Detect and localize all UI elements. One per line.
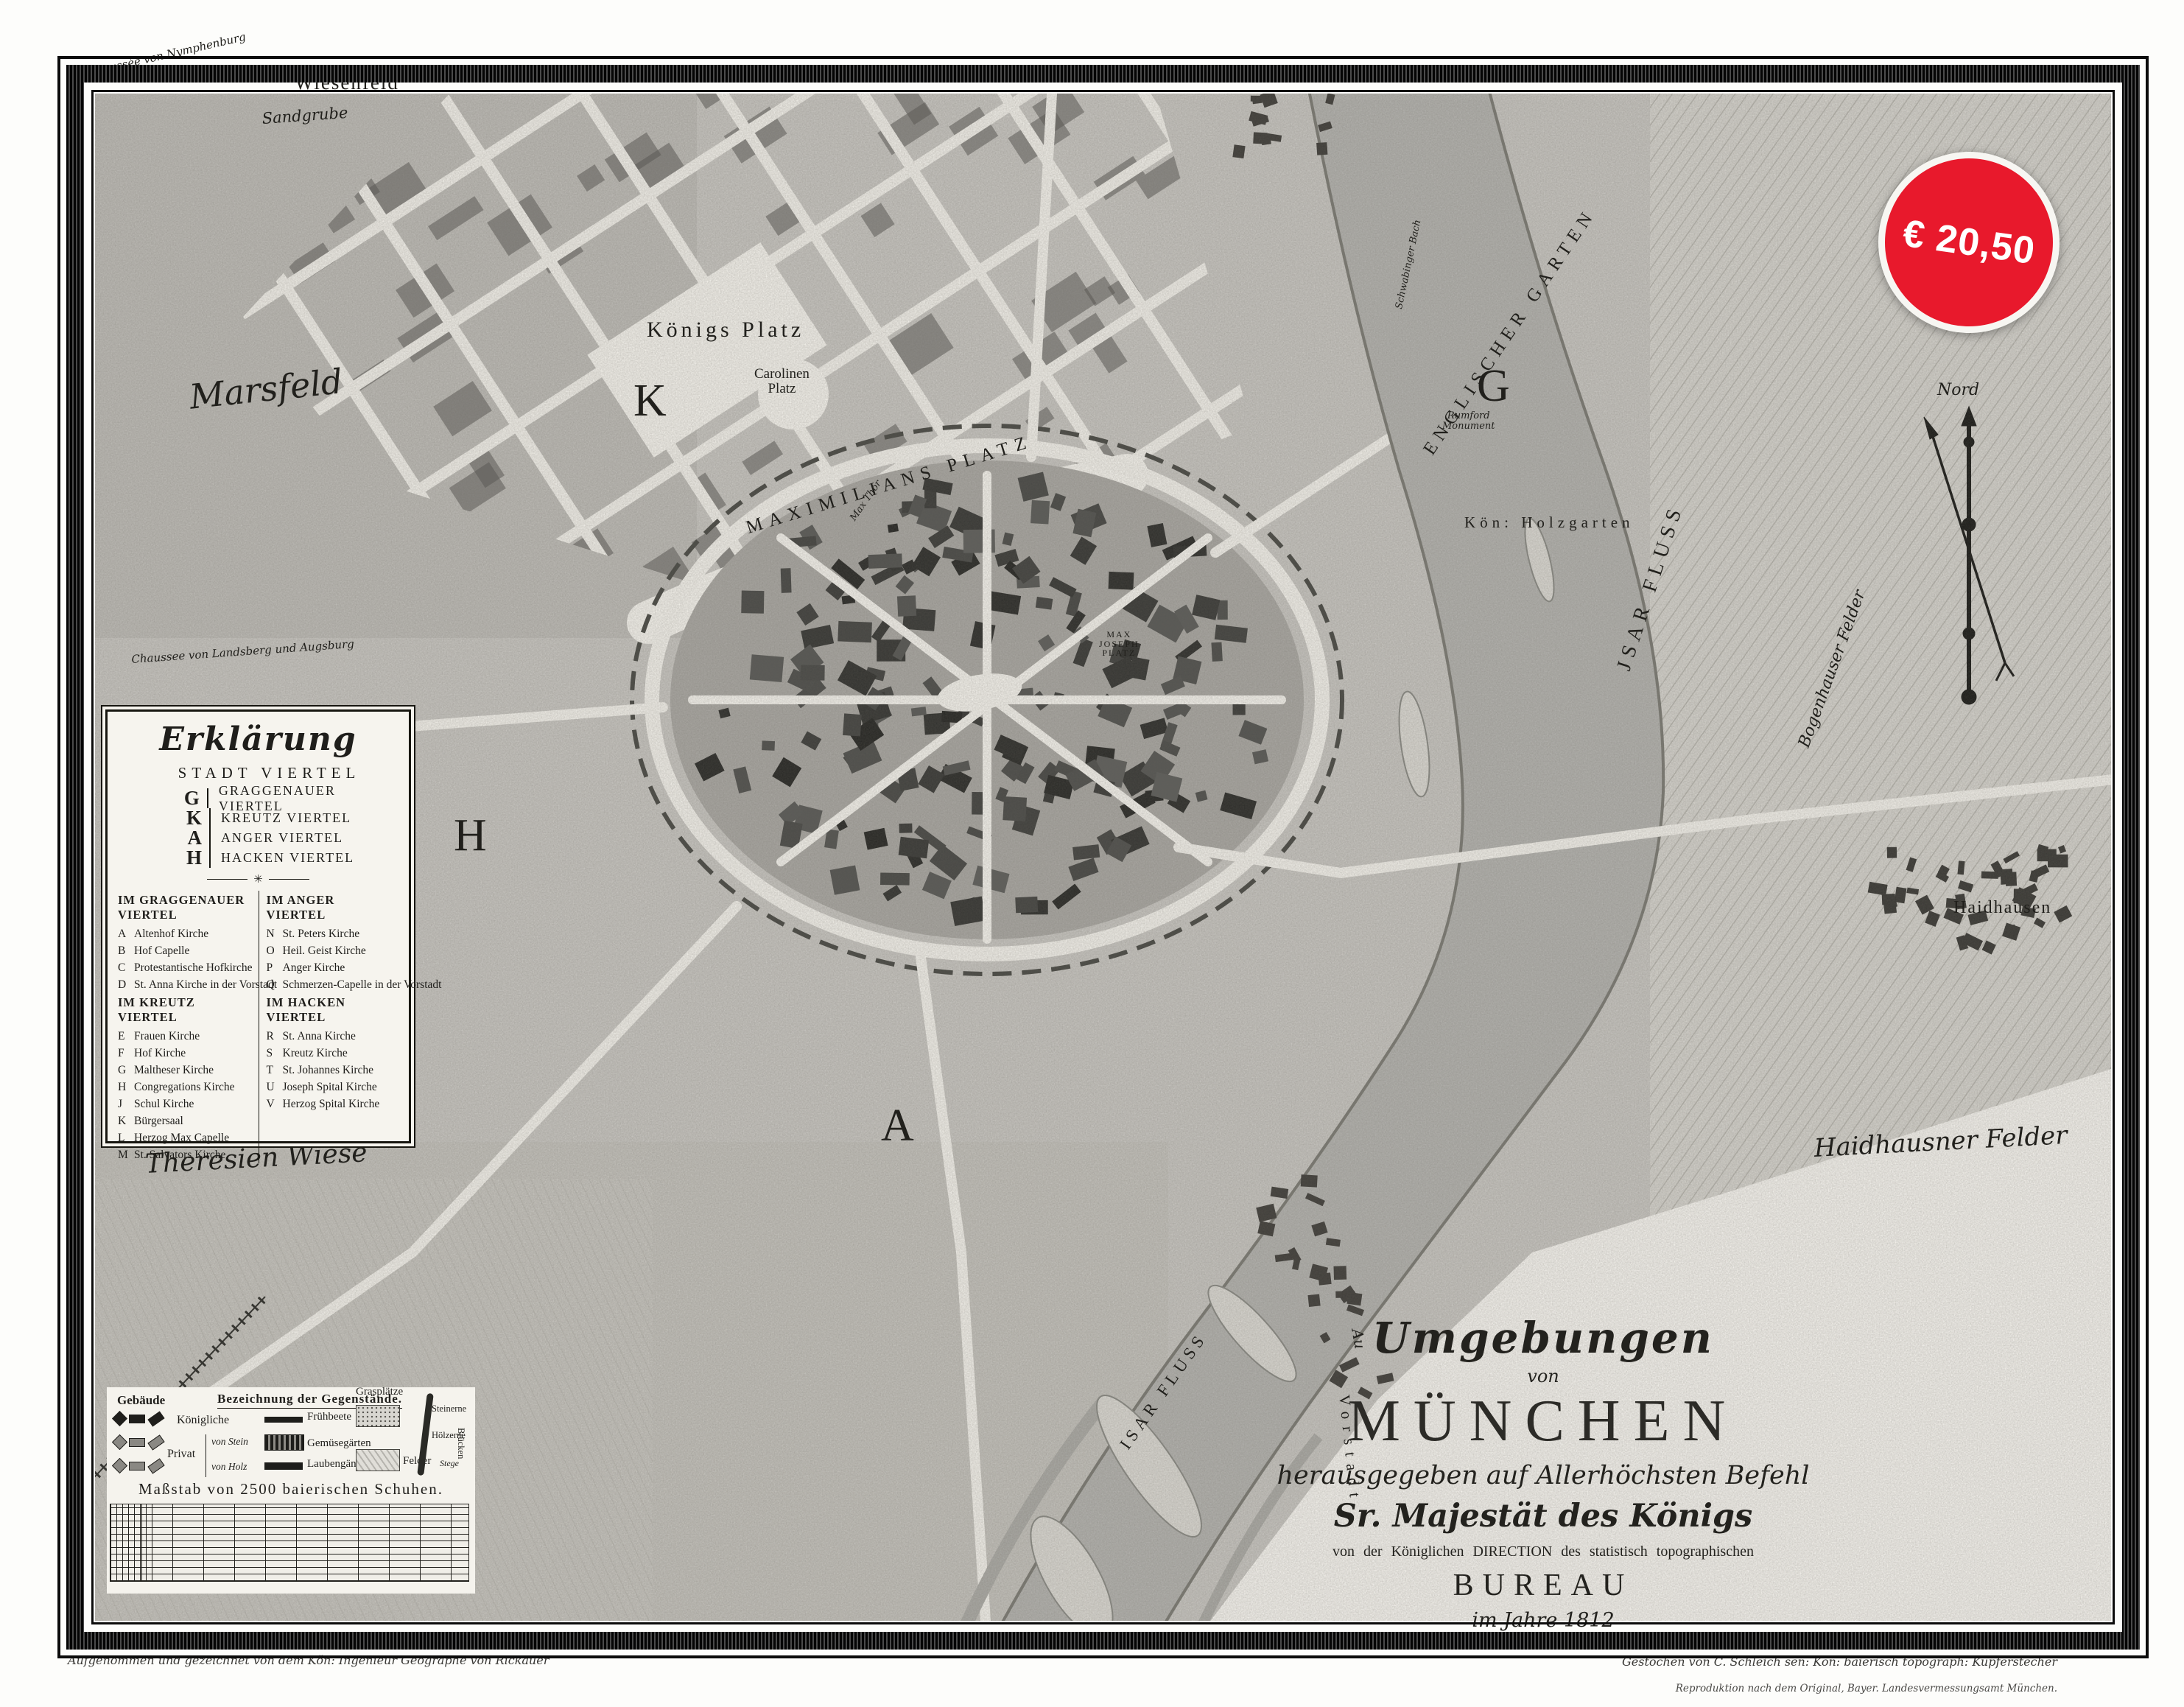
church-key: F xyxy=(118,1045,134,1062)
church-label: St. Anna Kirche xyxy=(283,1028,356,1045)
steinerne-label: Steinerne xyxy=(432,1403,466,1415)
church-column-right: IM ANGER VIERTELNSt. Peters KircheOHeil.… xyxy=(259,891,401,1163)
grasplaetze-symbol xyxy=(356,1405,400,1427)
gebaeude-label: Gebäude xyxy=(117,1393,165,1408)
church-key: R xyxy=(267,1028,283,1045)
map-label: Chaussée von Nymphenburg xyxy=(87,32,247,80)
church-label: Schul Kirche xyxy=(134,1096,194,1112)
quarter-label: GRAGGENAUER VIERTEL xyxy=(207,788,400,808)
church-entry: AAltenhof Kirche xyxy=(118,925,254,942)
church-entry: FHof Kirche xyxy=(118,1045,254,1062)
cartouche-line8: im Jahre 1812 xyxy=(1237,1609,1849,1632)
church-entry: CProtestantische Hofkirche xyxy=(118,959,254,976)
church-entry: SKreutz Kirche xyxy=(267,1045,396,1062)
church-entry: TSt. Johannes Kirche xyxy=(267,1062,396,1079)
quarter-row: AANGER VIERTEL xyxy=(116,828,400,848)
church-entry: UJoseph Spital Kirche xyxy=(267,1079,396,1096)
church-entry: QSchmerzen-Capelle in der Vorstadt xyxy=(267,976,396,993)
church-entry: OHeil. Geist Kirche xyxy=(267,942,396,959)
church-key: A xyxy=(118,925,134,942)
church-key: L xyxy=(118,1129,134,1146)
felder-label: Felder xyxy=(403,1455,431,1468)
credit-reproduction: Reproduktion nach dem Original, Bayer. L… xyxy=(1676,1683,2057,1694)
map-page: { "price_sticker": { "text": "€ 20,50", … xyxy=(0,0,2184,1707)
church-entry: JSchul Kirche xyxy=(118,1096,254,1112)
church-key: Q xyxy=(267,976,283,993)
quarter-row: HHACKEN VIERTEL xyxy=(116,848,400,868)
gemuesegaerten-label: Gemüsegärten xyxy=(307,1437,371,1450)
von-stein-label: von Stein xyxy=(211,1436,248,1448)
map-label: Wiesenfeld xyxy=(295,72,399,93)
quarter-row: GGRAGGENAUER VIERTEL xyxy=(116,788,400,808)
church-entry: HCongregations Kirche xyxy=(118,1079,254,1096)
church-label: Bürgersaal xyxy=(134,1112,183,1129)
church-key: C xyxy=(118,959,134,976)
church-label: Congregations Kirche xyxy=(134,1079,234,1096)
credit-surveyor: Aufgenommen und gezeichnet von dem Kön: … xyxy=(68,1653,549,1667)
church-key: M xyxy=(118,1146,134,1163)
church-key: N xyxy=(267,925,283,942)
bruecken-label: Brücken xyxy=(455,1428,466,1459)
church-key: E xyxy=(118,1028,134,1045)
church-label: Schmerzen-Capelle in der Vorstadt xyxy=(283,976,442,993)
church-legend-columns: IM GRAGGENAUER VIERTELAAltenhof KircheBH… xyxy=(116,891,400,1163)
church-key: H xyxy=(118,1079,134,1096)
fruehbeete-label: Frühbeete xyxy=(307,1411,351,1423)
cartouche-line5: Sr. Majestät des Königs xyxy=(1237,1498,1849,1535)
privat-brace xyxy=(206,1434,206,1477)
church-key: U xyxy=(267,1079,283,1096)
quarter-label: KREUTZ VIERTEL xyxy=(209,808,351,828)
church-label: Altenhof Kirche xyxy=(134,925,208,942)
cartouche-line1: Umgebungen xyxy=(1237,1313,1849,1363)
church-entry: RSt. Anna Kirche xyxy=(267,1028,396,1045)
church-label: Hof Kirche xyxy=(134,1045,186,1062)
church-label: Heil. Geist Kirche xyxy=(283,942,366,959)
church-key: V xyxy=(267,1096,283,1112)
church-key: G xyxy=(118,1062,134,1079)
church-key: K xyxy=(118,1112,134,1129)
legend-title: Erklärung xyxy=(116,721,400,758)
private-stone-symbols xyxy=(114,1436,167,1448)
church-key: B xyxy=(118,942,134,959)
church-key: S xyxy=(267,1045,283,1062)
gemuesegaerten-symbol xyxy=(264,1434,304,1451)
church-section-header: IM GRAGGENAUER VIERTEL xyxy=(118,893,254,922)
cartouche-line6: von der Königlichen DIRECTION des statis… xyxy=(1237,1543,1849,1560)
legend-divider: ✳ xyxy=(116,872,400,886)
credit-engraver: Gestochen von C. Schleich sen: Kön: baie… xyxy=(1622,1655,2057,1669)
church-entry: EFrauen Kirche xyxy=(118,1028,254,1045)
church-label: Protestantische Hofkirche xyxy=(134,959,253,976)
church-label: Kreutz Kirche xyxy=(283,1045,348,1062)
church-section-header: IM KREUTZ VIERTEL xyxy=(118,995,254,1025)
cartouche-line7: BUREAU xyxy=(1237,1568,1849,1603)
church-label: St. Johannes Kirche xyxy=(283,1062,374,1079)
church-label: Hof Capelle xyxy=(134,942,189,959)
price-sticker: € 20,50 xyxy=(1878,152,2060,333)
church-entry: PAnger Kirche xyxy=(267,959,396,976)
koenigliche-label: Königliche xyxy=(177,1414,229,1427)
von-holz-label: von Holz xyxy=(211,1461,247,1473)
grasplaetze-label: Grasplätze xyxy=(356,1386,403,1398)
church-label: St. Anna Kirche in der Vorstadt xyxy=(134,976,277,993)
church-label: Herzog Spital Kirche xyxy=(283,1096,380,1112)
asterisk-ornament: ✳ xyxy=(253,872,263,886)
church-key: T xyxy=(267,1062,283,1079)
church-label: Herzog Max Capelle xyxy=(134,1129,229,1146)
quarter-label: HACKEN VIERTEL xyxy=(209,848,354,868)
church-key: O xyxy=(267,942,283,959)
cartouche-line4: herausgegeben auf Allerhöchsten Befehl xyxy=(1237,1461,1849,1490)
church-label: Joseph Spital Kirche xyxy=(283,1079,377,1096)
church-label: St. Peters Kirche xyxy=(283,925,360,942)
price-text: € 20,50 xyxy=(1900,211,2037,274)
title-cartouche: Umgebungen von MÜNCHEN herausgegeben auf… xyxy=(1237,1313,1849,1632)
stege-label: Stege xyxy=(440,1458,459,1469)
church-key: D xyxy=(118,976,134,993)
church-entry: LHerzog Max Capelle xyxy=(118,1129,254,1146)
church-entry: MSt. Salvators Kirche xyxy=(118,1146,254,1163)
church-entry: BHof Capelle xyxy=(118,942,254,959)
church-entry: VHerzog Spital Kirche xyxy=(267,1096,396,1112)
church-key: J xyxy=(118,1096,134,1112)
scale-caption: Maßstab von 2500 baierischen Schuhen. xyxy=(107,1480,475,1499)
church-label: Maltheser Kirche xyxy=(134,1062,214,1079)
quarter-label: ANGER VIERTEL xyxy=(209,828,343,848)
church-column-left: IM GRAGGENAUER VIERTELAAltenhof KircheBH… xyxy=(116,891,259,1163)
royal-building-symbols xyxy=(114,1412,167,1425)
church-section-header: IM HACKEN VIERTEL xyxy=(267,995,396,1025)
church-entry: GMaltheser Kirche xyxy=(118,1062,254,1079)
fruehbeete-symbol xyxy=(264,1417,303,1423)
quarter-key: H xyxy=(116,847,209,869)
church-entry: KBürgersaal xyxy=(118,1112,254,1129)
church-section-header: IM ANGER VIERTEL xyxy=(267,893,396,922)
symbols-legend-panel: Gebäude Bezeichnung der Gegenstände. Kön… xyxy=(107,1387,475,1594)
church-entry: DSt. Anna Kirche in der Vorstadt xyxy=(118,976,254,993)
legend-box: Erklärung STADT VIERTEL GGRAGGENAUER VIE… xyxy=(105,709,411,1143)
church-entry: NSt. Peters Kirche xyxy=(267,925,396,942)
church-label: Frauen Kirche xyxy=(134,1028,200,1045)
church-key: P xyxy=(267,959,283,976)
map-title: MÜNCHEN xyxy=(1237,1388,1849,1455)
felder-symbol xyxy=(356,1449,400,1471)
church-label: Anger Kirche xyxy=(283,959,345,976)
privat-label: Privat xyxy=(167,1448,195,1461)
cartouche-line2: von xyxy=(1237,1366,1849,1387)
laubengaenge-symbol xyxy=(264,1462,303,1470)
church-label: St. Salvators Kirche xyxy=(134,1146,225,1163)
legend-subtitle: STADT VIERTEL xyxy=(138,764,400,782)
quarter-list: GGRAGGENAUER VIERTELKKREUTZ VIERTELAANGE… xyxy=(116,788,400,868)
private-wood-symbols xyxy=(114,1459,167,1472)
scale-bar xyxy=(110,1504,469,1582)
